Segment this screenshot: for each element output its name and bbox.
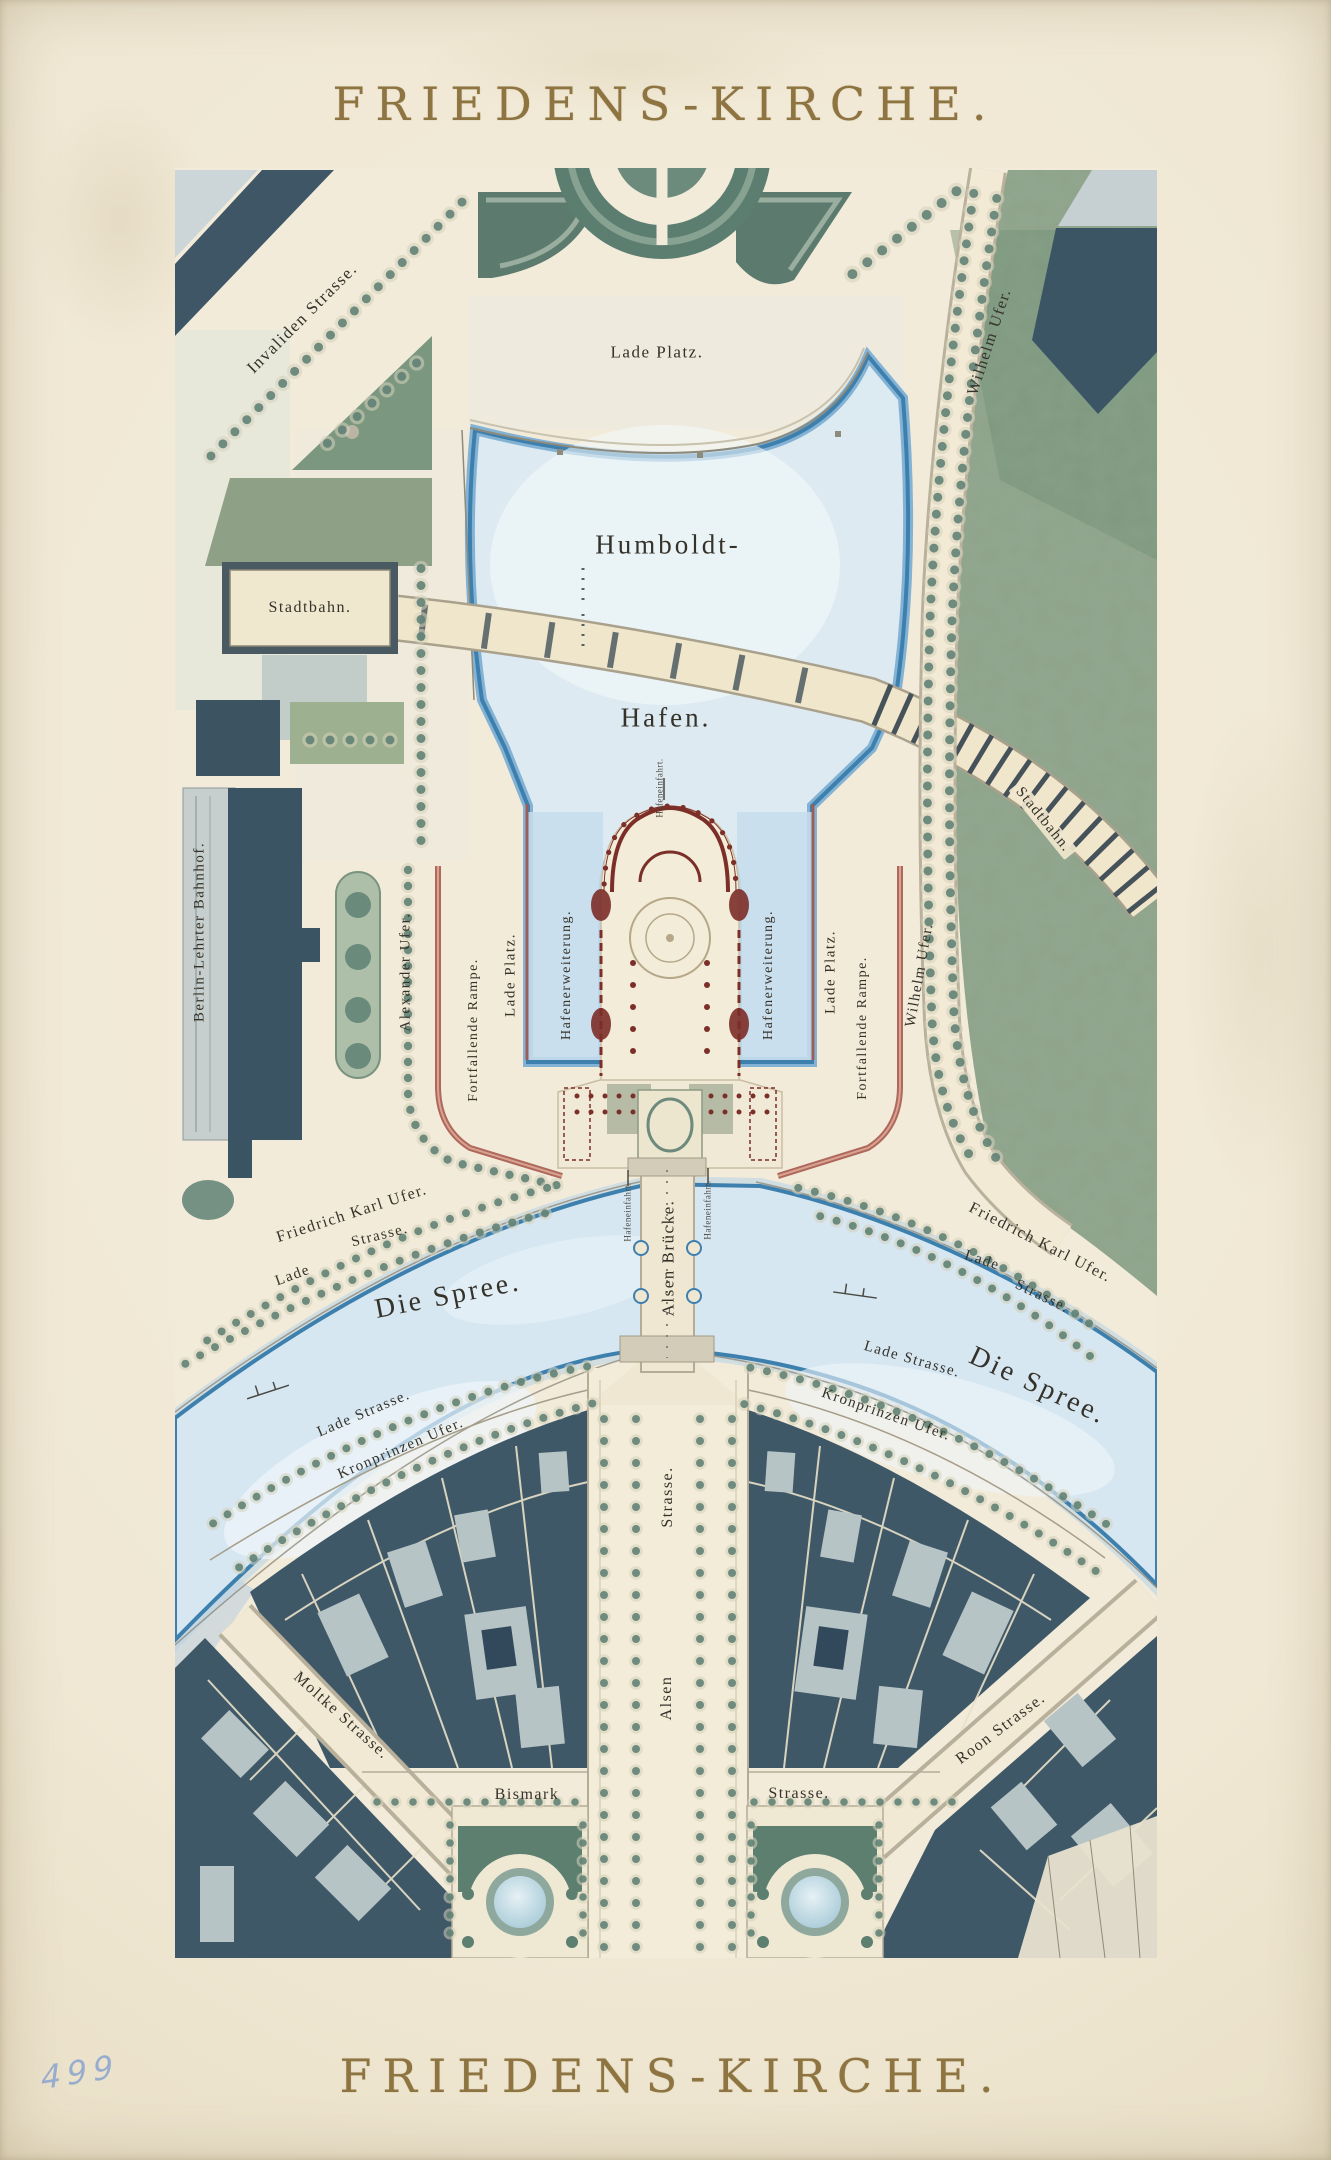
stadtbahn-station-label: Stadtbahn.	[269, 600, 352, 616]
fortfallende-rampe-east-label: Fortfallende Rampe.	[856, 956, 870, 1100]
bismark-label: Bismark	[495, 1787, 560, 1803]
hafeneinfahrt-north-label: Hafeneinfahrt.	[656, 758, 665, 817]
lade-platz-west-label: Lade Platz.	[504, 933, 519, 1017]
alsen-bruecke-label: Alsen Brücke.	[660, 1200, 677, 1317]
lade-platz-east-label: Lade Platz.	[824, 930, 839, 1014]
hafen-label: Hafen.	[621, 705, 712, 732]
hafeneinfahrt-east-label: Hafeneinfahrt.	[704, 1180, 713, 1239]
humboldt-label: Humboldt-	[595, 532, 741, 559]
map-drawing	[0, 0, 1331, 2160]
bismark-strasse-part2-label: Strasse.	[768, 1786, 829, 1802]
lade-platz-north-label: Lade Platz.	[611, 344, 704, 361]
title-bottom: FRIEDENS-KIRCHE.	[339, 2049, 1004, 2103]
hafenerweiterung-east-label: Hafenerweiterung.	[762, 910, 776, 1040]
fortfallende-rampe-west-label: Fortfallende Rampe.	[467, 958, 481, 1102]
hafeneinfahrt-west-label: Hafeneinfahrt.	[624, 1182, 633, 1241]
title-top: FRIEDENS-KIRCHE.	[332, 77, 997, 131]
berlin-lehrter-bahnhof-label: Berlin-Lehrter Bahnhof.	[193, 842, 208, 1022]
alsen-strasse-label-part1: Alsen	[659, 1676, 675, 1721]
alexander-ufer-label: Alexander Ufer.	[399, 912, 414, 1031]
hafenerweiterung-west-label: Hafenerweiterung.	[560, 910, 574, 1040]
alsen-strasse-label-part2: Strasse.	[660, 1466, 676, 1527]
map-sheet: FRIEDENS-KIRCHE. FRIEDENS-KIRCHE. 499 In…	[0, 0, 1331, 2160]
